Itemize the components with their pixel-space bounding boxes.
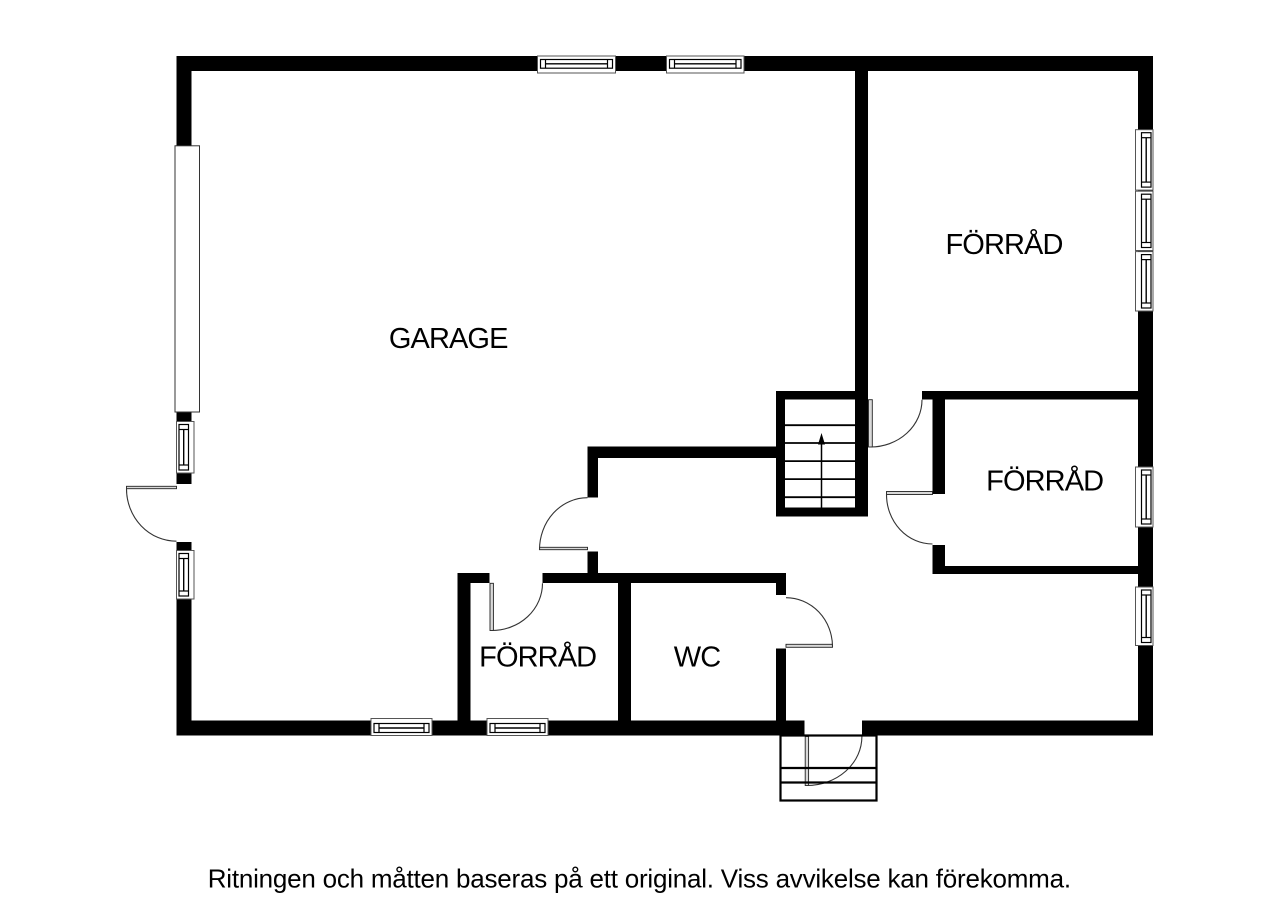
- svg-text:FÖRRÅD: FÖRRÅD: [479, 641, 596, 674]
- svg-text:GARAGE: GARAGE: [389, 323, 508, 355]
- svg-text:FÖRRÅD: FÖRRÅD: [986, 465, 1103, 498]
- svg-text:WC: WC: [674, 641, 721, 673]
- svg-text:Ritningen och måtten baseras p: Ritningen och måtten baseras på ett orig…: [208, 864, 1071, 894]
- svg-text:FÖRRÅD: FÖRRÅD: [945, 228, 1062, 261]
